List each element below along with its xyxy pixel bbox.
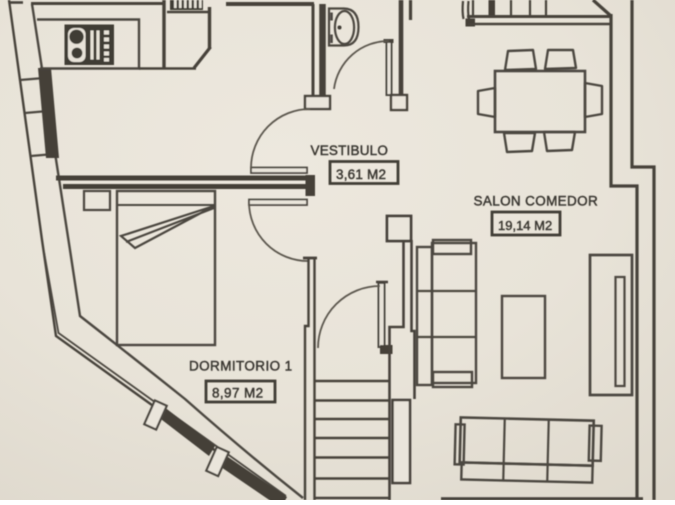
svg-text:DORMITORIO 1: DORMITORIO 1 [189,359,293,374]
svg-text:19,14 M2: 19,14 M2 [498,218,552,233]
svg-text:SALON COMEDOR: SALON COMEDOR [474,194,599,209]
svg-text:VESTIBULO: VESTIBULO [311,143,389,158]
svg-text:3,61 M2: 3,61 M2 [336,167,386,182]
svg-text:8,97 M2: 8,97 M2 [212,386,264,401]
